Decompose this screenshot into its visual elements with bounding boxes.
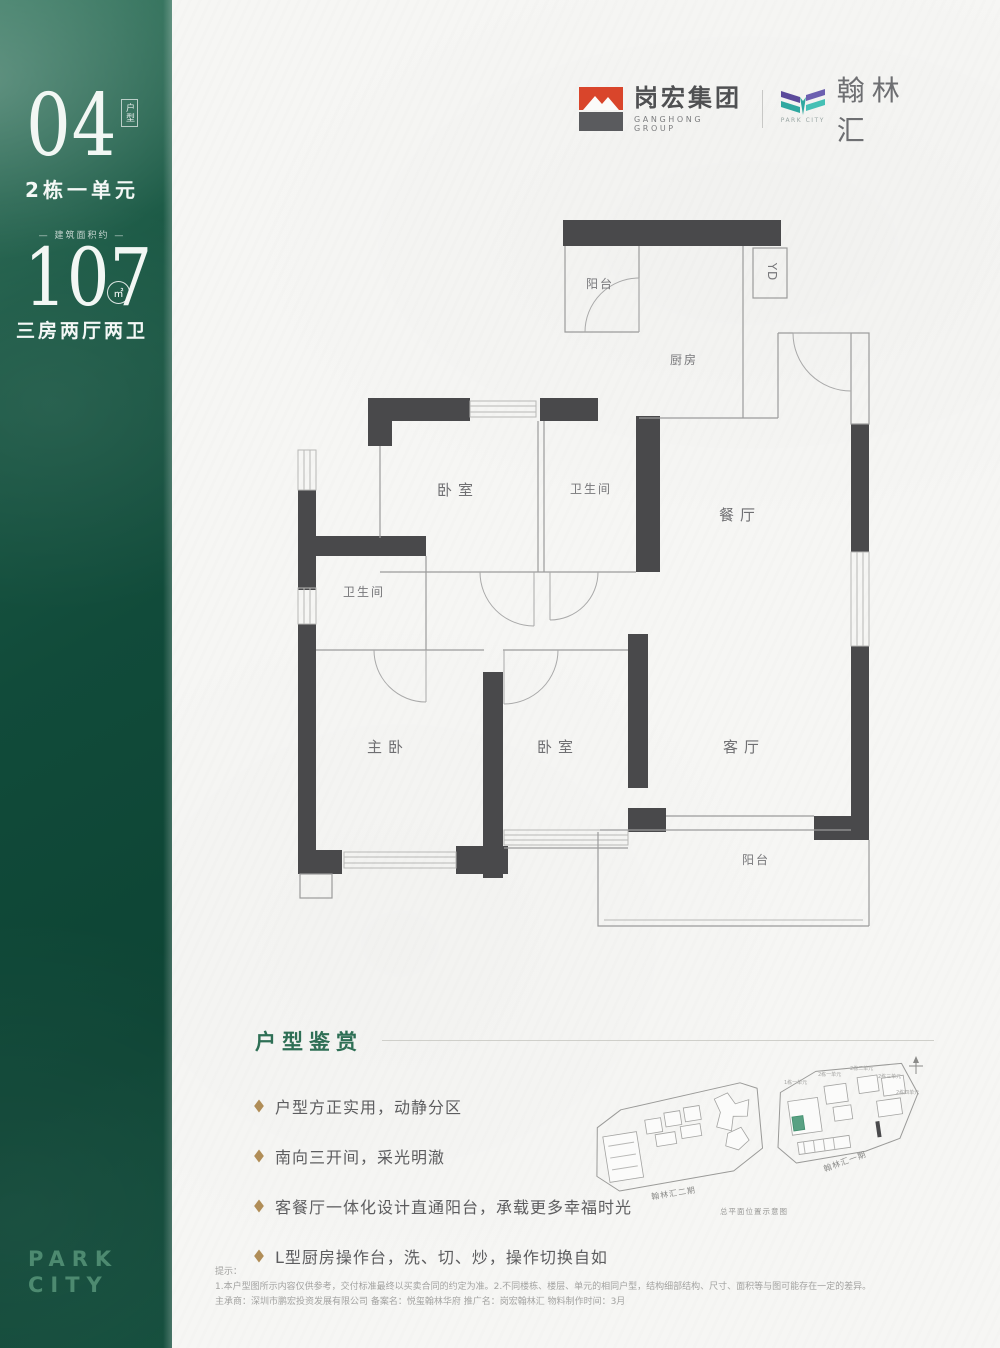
hanlin-logo-glyph [780,88,826,116]
brand-line1: PARK [28,1247,118,1273]
area-value: 107 [24,240,152,316]
room-label-dining: 餐厅 [719,506,761,524]
sidebar-panel: 04 户型 2栋一单元 — 建筑面积约 — 107 ㎡ 三房两厅两卫 PARK … [0,0,172,1348]
diamond-bullet-icon [254,1100,264,1113]
hanlin-subtitle: PARK CITY [781,117,825,124]
logo-divider [762,90,763,128]
building-label: 2栋二单元 [850,1065,873,1072]
room-label-balcony-bottom: 阳台 [742,852,770,867]
feature-text: 户型方正实用，动静分区 [275,1094,462,1118]
hanlin-name: 翰林汇 [837,69,938,149]
section-title-rule [382,1040,934,1041]
ganghong-logo-text: 岗宏集团 GANGHONG GROUP [634,85,746,132]
ganghong-name: 岗宏集团 [634,85,746,111]
room-label-yd: YD [765,262,779,282]
floor-plan-lines [300,246,869,926]
room-label-bath-top: 卫生间 [570,482,612,496]
park-city-wordmark: PARK CITY [28,1247,118,1298]
area-unit-badge: ㎡ [107,281,130,304]
floor-plan-walls [298,220,869,878]
floor-plan: 阳台 YD 厨房 餐厅 卧室 卫生间 卫生间 主卧 卧室 客厅 阳台 [288,220,892,942]
site-plan: 翰林汇二期 1栋一单元 2栋一单元 2栋二单元 2栋三单元 2栋四单元 翰林汇一… [578,1054,930,1222]
room-label-bath-left: 卫生间 [343,585,385,599]
room-label-master: 主卧 [367,738,409,756]
disclaimer-line2: 主承商：深圳市鹏宏投资发展有限公司 备案名：悦玺翰林华府 推广名：岗宏翰林汇 物… [215,1295,915,1310]
site-plan-phase1 [768,1058,925,1165]
site-plan-caption: 总平面位置示意图 [720,1206,788,1216]
diamond-bullet-icon [254,1150,264,1163]
diamond-bullet-icon [254,1200,264,1213]
building-name: 2栋一单元 [0,174,164,203]
section-title: 户型鉴赏 [255,1026,363,1056]
unit-tag-label: 户型 [123,103,136,123]
site-plan-phase2-label: 翰林汇二期 [651,1185,697,1202]
building-label: 2栋三单元 [878,1073,901,1080]
highlighted-unit-04 [792,1116,805,1131]
diamond-bullet-icon [254,1250,264,1263]
unit-tag-box: 户型 [121,99,138,127]
room-label-living: 客厅 [723,738,765,756]
floor-plan-windows [298,401,869,868]
building-label: 2栋四单元 [896,1089,919,1096]
disclaimer-line1: 1.本户型图所示内容仅供参考，交付标准最终以买卖合同的约定为准。2.不同楼栋、楼… [215,1280,915,1295]
room-label-bedroom-bottom: 卧室 [537,738,579,756]
site-plan-phase1-label: 翰林汇一期 [822,1149,868,1174]
brand-line2: CITY [28,1273,118,1299]
feature-text: 南向三开间，采光明澈 [275,1144,445,1168]
disclaimer-title: 提示： [215,1264,915,1277]
disclaimer: 提示： 1.本户型图所示内容仅供参考，交付标准最终以买卖合同的约定为准。2.不同… [215,1264,915,1310]
room-label-bedroom-top: 卧室 [437,481,479,499]
site-plan-phase2 [586,1080,770,1194]
hanlin-logo-icon: PARK CITY [779,88,827,130]
header-logos: 岗宏集团 GANGHONG GROUP PARK CITY 翰林汇 [578,80,938,138]
room-label-kitchen: 厨房 [670,352,698,367]
ganghong-subtitle: GANGHONG GROUP [634,115,746,133]
layout-description: 三房两厅两卫 [0,316,164,343]
floor-plan-room-labels: 阳台 YD 厨房 餐厅 卧室 卫生间 卫生间 主卧 卧室 客厅 阳台 [343,262,779,867]
north-arrow-icon [909,1056,923,1074]
unit-number: 04 [26,86,117,168]
building-label: 1栋一单元 [784,1079,807,1086]
room-label-balcony-top: 阳台 [586,276,614,291]
ganghong-logo-icon [578,86,624,132]
building-label: 2栋一单元 [818,1071,841,1078]
